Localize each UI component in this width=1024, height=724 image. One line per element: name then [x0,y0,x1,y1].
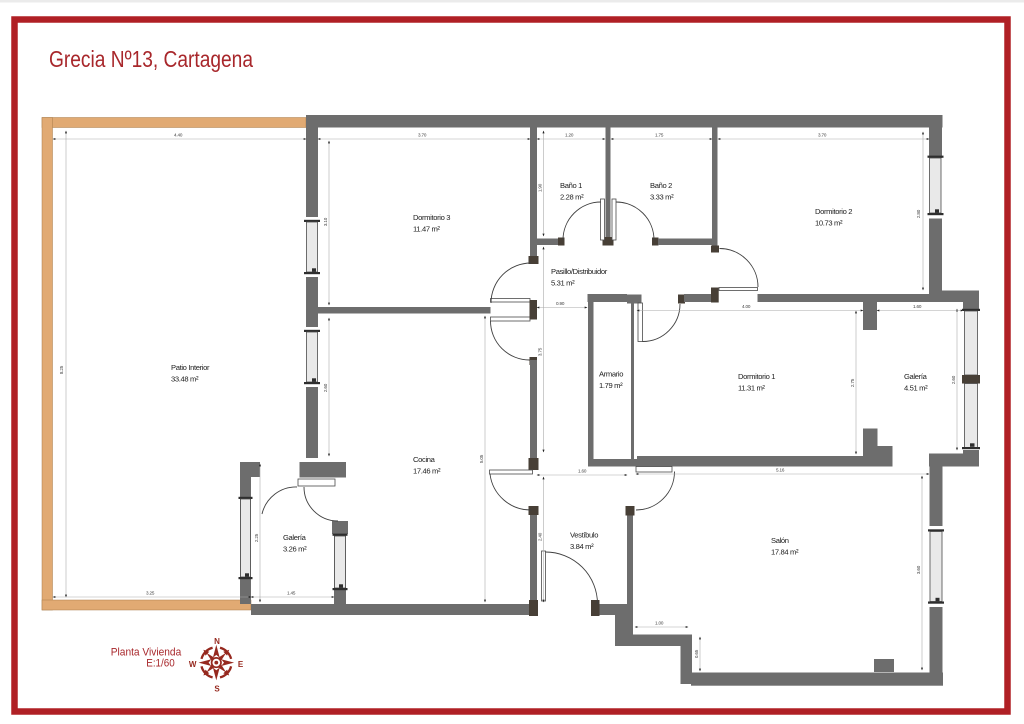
svg-text:2.80: 2.80 [916,209,921,218]
svg-text:1.45: 1.45 [287,591,296,596]
svg-text:E: E [238,660,244,669]
svg-text:4.00: 4.00 [742,304,751,309]
svg-text:Grecia Nº13, Cartagena: Grecia Nº13, Cartagena [49,46,253,72]
svg-text:E:1/60: E:1/60 [146,658,175,670]
svg-text:0.90: 0.90 [556,301,565,306]
svg-text:1.60: 1.60 [913,304,922,309]
svg-text:2.75: 2.75 [850,378,855,387]
svg-text:1.20: 1.20 [565,133,574,138]
svg-text:3.70: 3.70 [418,133,427,138]
svg-text:0.65: 0.65 [694,649,699,658]
svg-text:W: W [189,660,197,669]
svg-text:3.25: 3.25 [146,591,155,596]
svg-text:1.90: 1.90 [538,183,543,192]
svg-text:8.25: 8.25 [59,365,64,374]
svg-text:3.60: 3.60 [916,565,921,574]
svg-text:2.40: 2.40 [538,532,543,541]
svg-text:3.75: 3.75 [538,347,543,356]
svg-text:3.10: 3.10 [323,217,328,226]
svg-text:N: N [214,637,220,646]
svg-text:S: S [214,684,220,693]
svg-text:5.16: 5.16 [776,468,785,473]
svg-text:4.40: 4.40 [174,133,183,138]
svg-text:2.60: 2.60 [323,383,328,392]
svg-text:3.70: 3.70 [818,133,827,138]
svg-text:1.75: 1.75 [655,133,664,138]
svg-text:2.60: 2.60 [951,375,956,384]
svg-text:5.05: 5.05 [479,454,484,463]
svg-text:1.00: 1.00 [655,621,664,626]
svg-text:2.25: 2.25 [254,533,259,542]
svg-text:1.60: 1.60 [578,469,587,474]
